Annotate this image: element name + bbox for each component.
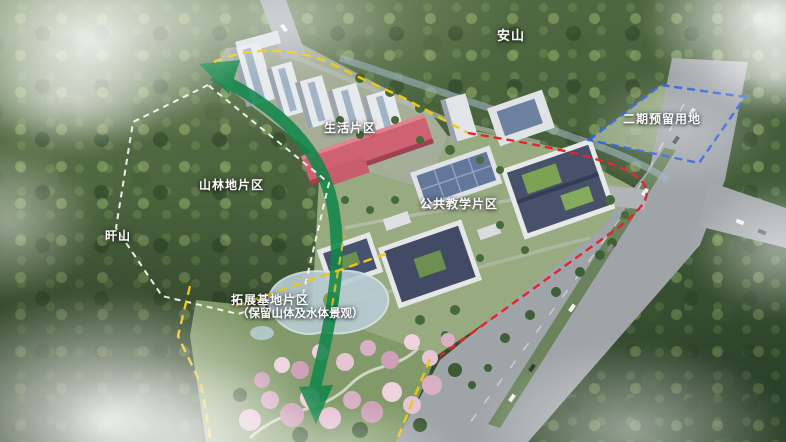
- label-teaching-zone: 公共教学片区: [420, 197, 498, 211]
- branch-road: [698, 182, 786, 248]
- label-expansion-zone: 拓展基地片区: [231, 293, 309, 307]
- site-plan-scene: [0, 0, 786, 442]
- label-anshan-mountain: 安山: [497, 28, 525, 44]
- label-expansion-zone-note: （保留山体及水体景观）: [237, 308, 364, 322]
- label-living-zone: 生活片区: [324, 121, 376, 135]
- label-forest-zone: 山林地片区: [199, 178, 264, 192]
- masterplan-aerial-rendering: 安山 二期预留用地 生活片区 山林地片区 旰山 公共教学片区 拓展基地片区 （保…: [0, 0, 786, 442]
- label-ganshan-mountain: 旰山: [105, 229, 131, 243]
- label-phase2-reserved-land: 二期预留用地: [623, 112, 701, 126]
